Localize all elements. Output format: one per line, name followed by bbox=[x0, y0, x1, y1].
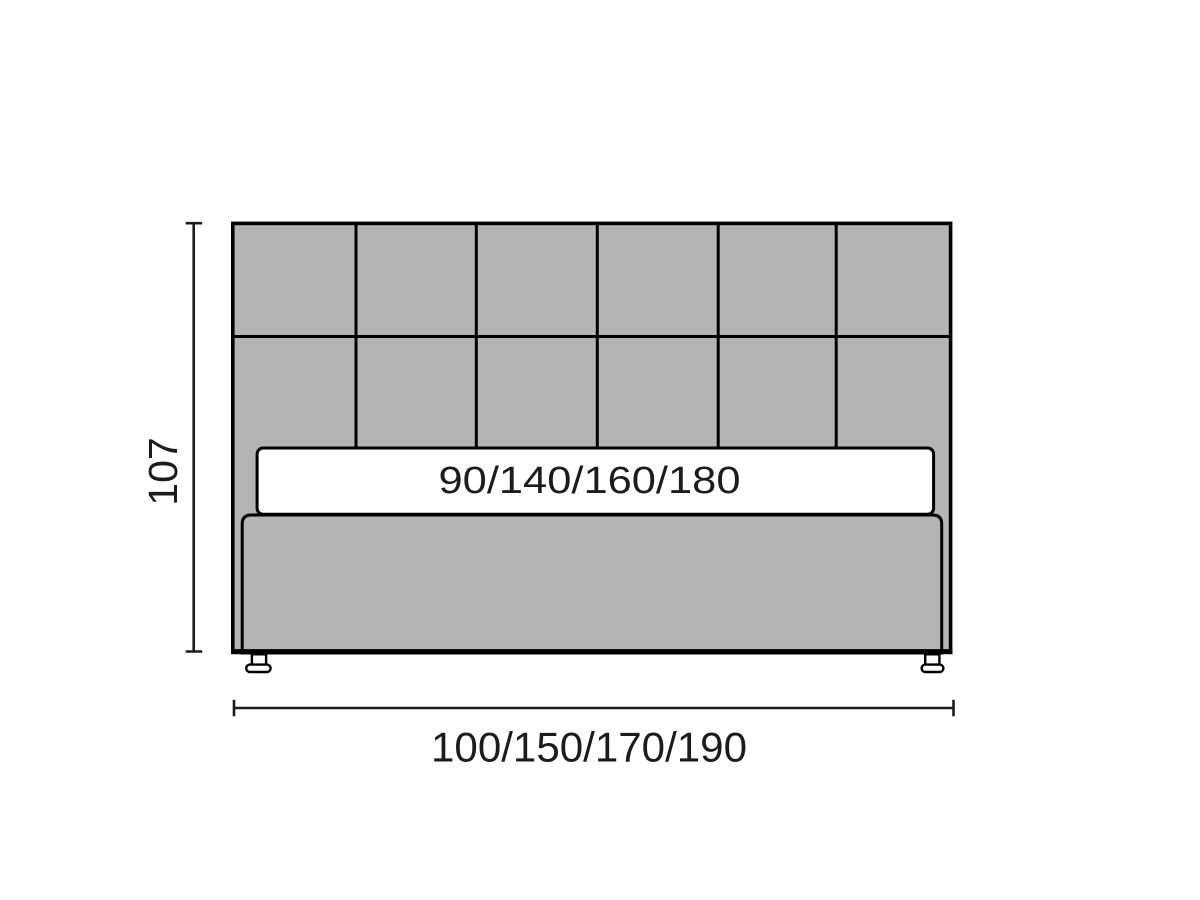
svg-text:90/140/160/180: 90/140/160/180 bbox=[439, 460, 741, 502]
svg-text:107: 107 bbox=[140, 437, 186, 505]
svg-text:100/150/170/190: 100/150/170/190 bbox=[431, 724, 747, 771]
